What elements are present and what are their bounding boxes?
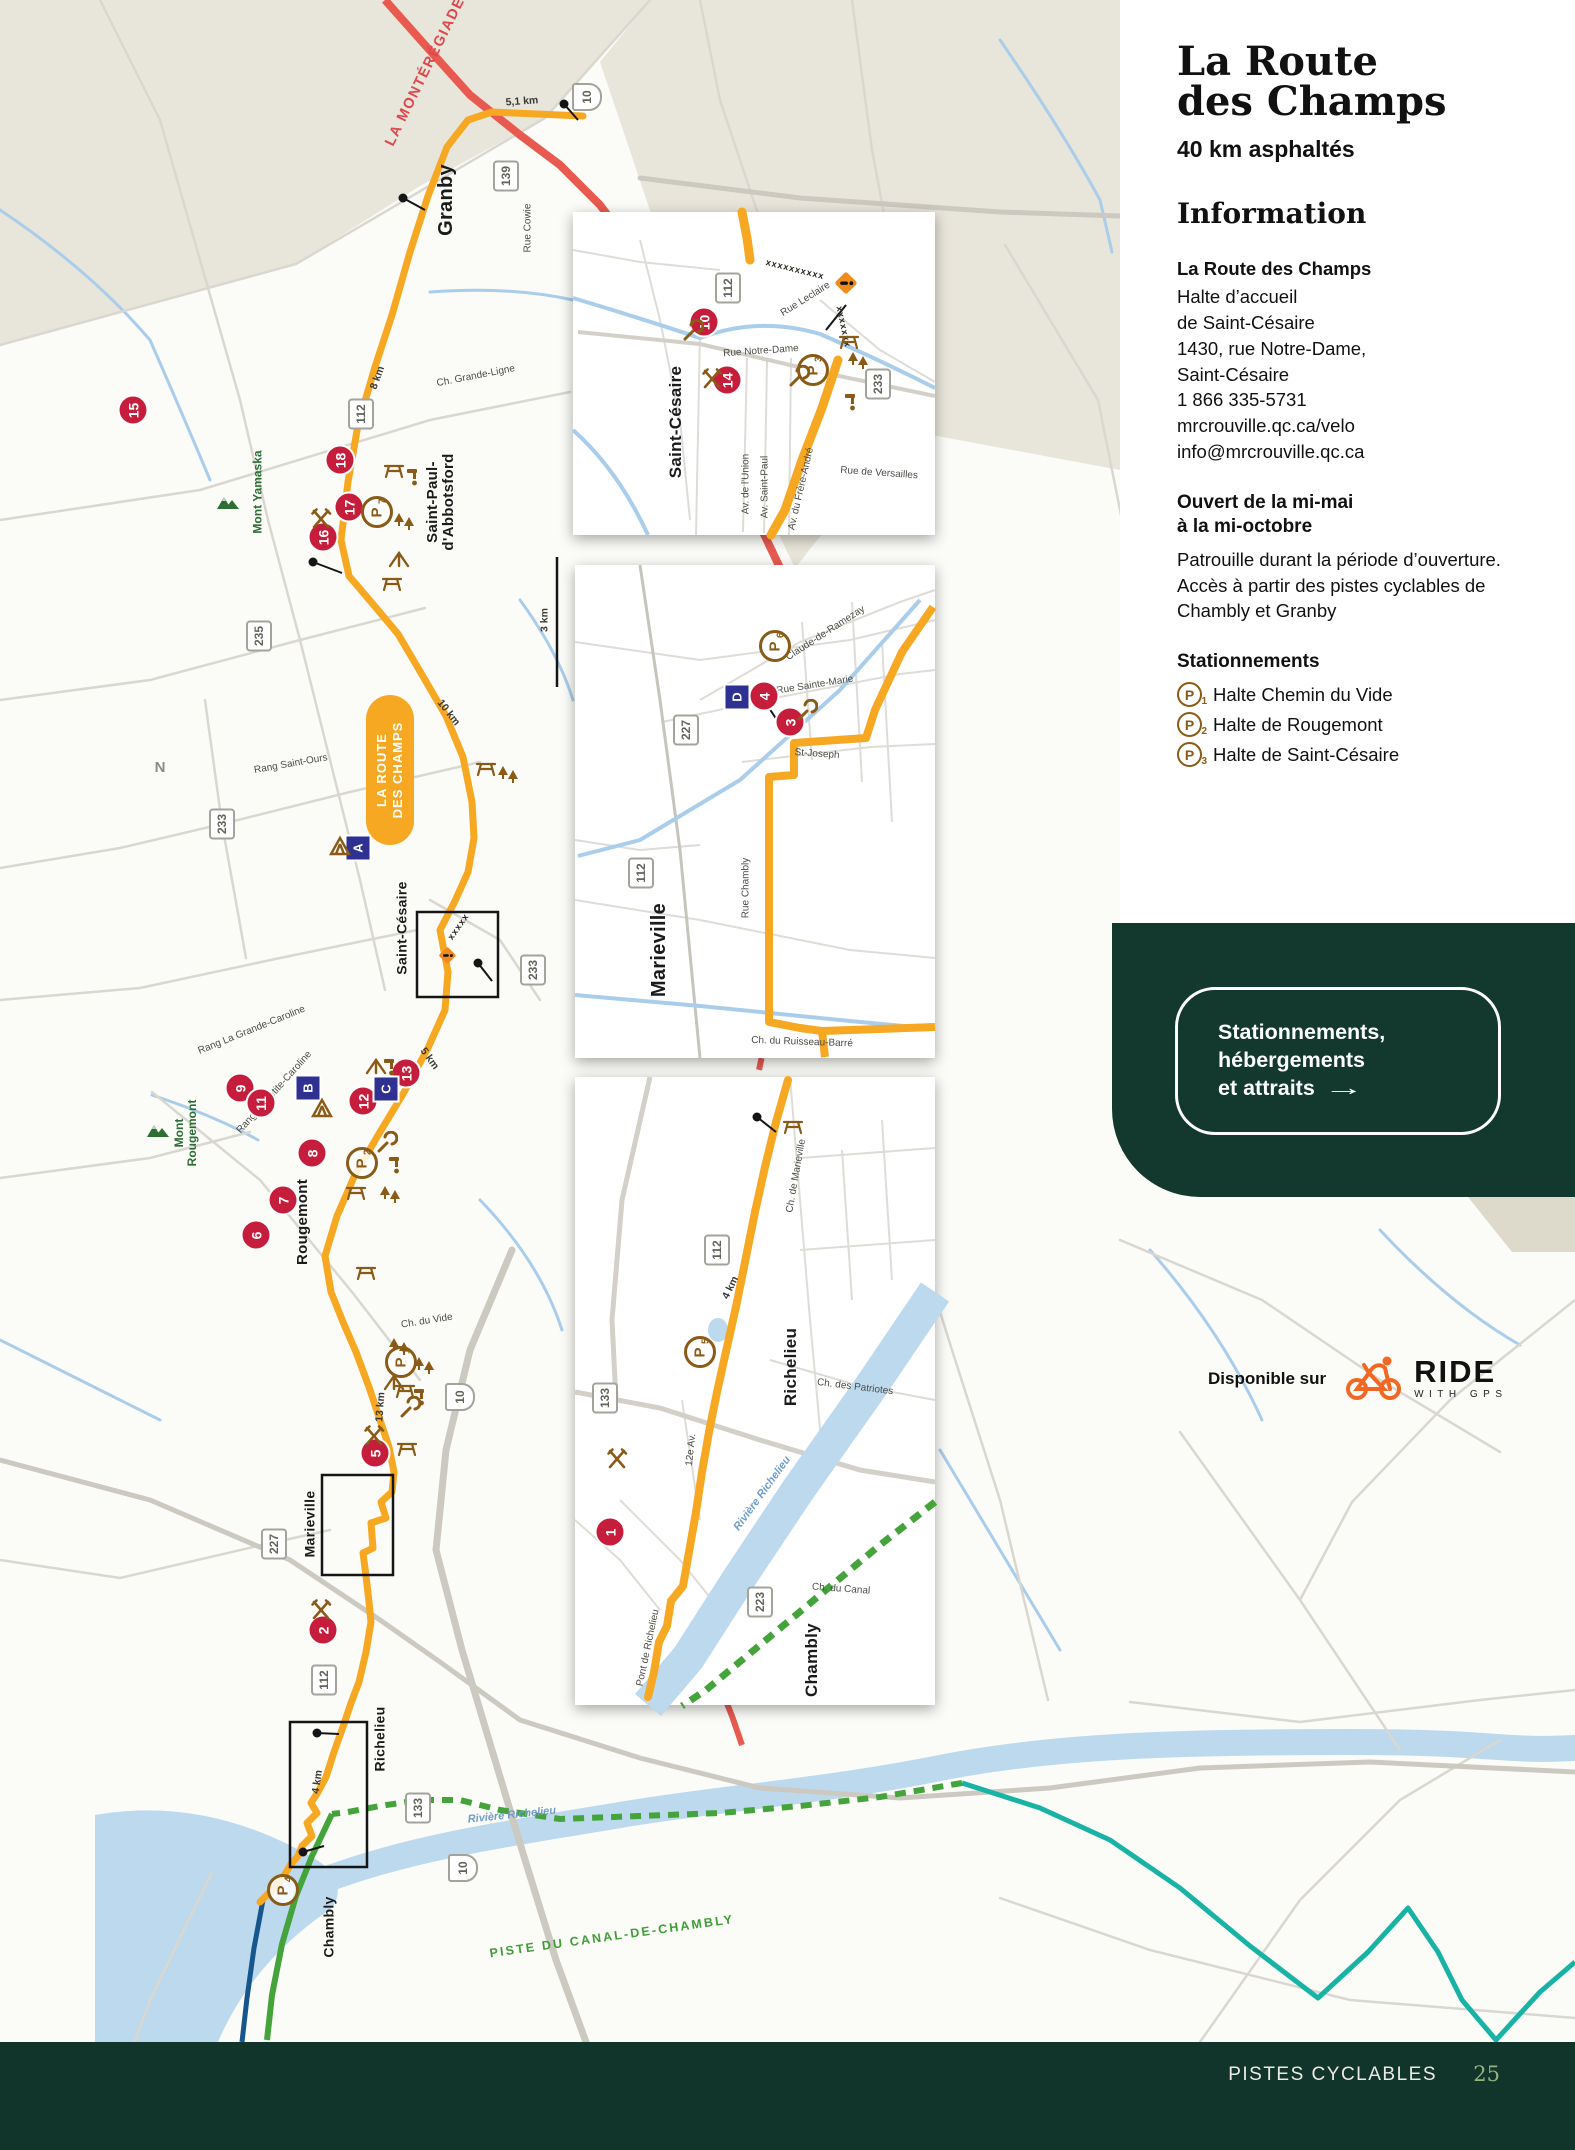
autoroute-shield-10: 10 (445, 1383, 475, 1411)
parking-item-label: Halte Chemin du Vide (1213, 684, 1393, 706)
map-label-water: Rivière Richelieu (467, 1805, 556, 1826)
wrench-icon (680, 319, 704, 343)
trees-icon (392, 511, 416, 535)
address-block: La Route des Champs Halte d’accueil de S… (1177, 256, 1535, 465)
poi-marker-18: 18 (327, 447, 354, 474)
route-label-monteregiade: LA MONTÉRÉGIADE (383, 0, 469, 149)
arrow-right-icon: → (1323, 1075, 1364, 1103)
water-icon (409, 1384, 433, 1408)
disponible-sur-label: Disponible sur (1208, 1369, 1326, 1389)
page: LA MONTÉRÉGIADEPISTE DU CANAL-DE-CHAMBLY… (0, 0, 1575, 2150)
trees-icon (412, 1355, 436, 1379)
water-icon (379, 1054, 403, 1078)
inset3-city-richelieu: Richelieu (782, 1328, 800, 1406)
map-label-dist: 3 km (539, 608, 550, 632)
route-shield-139: 139 (493, 161, 519, 192)
route-shield-112: 112 (715, 273, 741, 304)
map-label-street: Rue Notre-Dame (723, 344, 799, 360)
parking-icon: P3 (1177, 742, 1202, 767)
route-shield-227: 227 (261, 1529, 287, 1560)
route-length: 40 km asphaltés (1177, 136, 1535, 163)
map-label-dist: 8 km (369, 365, 388, 391)
route-shield-112: 112 (348, 399, 374, 430)
parking-marker-P5: P5 (684, 1336, 716, 1368)
map-label-street: Ch. du Canal (812, 1583, 871, 1598)
trees-icon (378, 1184, 402, 1208)
parking-item: P3Halte de Saint-Césaire (1177, 742, 1535, 767)
route-shield-227: 227 (673, 715, 699, 746)
construction-icon (831, 268, 861, 298)
poi-marker-17: 17 (336, 494, 363, 521)
picnic-icon (474, 756, 498, 780)
city-saint-paul-abbotsford: Saint-Paul- d'Abbotsford (425, 453, 457, 550)
poi-marker-4: 4 (751, 683, 778, 710)
water-icon (840, 389, 864, 413)
city-chambly: Chambly (321, 1896, 336, 1957)
map-label-street: Rue Sainte-Marie (776, 675, 855, 698)
parking-marker-P7: P7 (361, 496, 393, 528)
map-label-street: Ch. du Vide (400, 1313, 453, 1332)
shelter-icon (387, 547, 411, 571)
route-shield-223: 223 (747, 1587, 773, 1618)
picnic-icon (395, 1436, 419, 1460)
phone-number: 1 866 335-5731 (1177, 387, 1535, 413)
mountain-icon (146, 1121, 170, 1145)
food-icon (700, 367, 724, 391)
tent-icon (310, 1096, 334, 1120)
shelter-icon (382, 1370, 406, 1394)
green-cta-panel: Stationnements, hébergements et attraits… (1112, 923, 1575, 1197)
letter-marker-C: C (375, 1078, 398, 1101)
map-label-street: Claude-de-Ramezay (785, 604, 868, 663)
water-icon (402, 464, 426, 488)
trees-icon (846, 350, 870, 374)
route-name: La Route des Champs (1177, 256, 1535, 282)
parking-marker-P4: P4 (267, 1874, 299, 1906)
page-title: La Route des Champs (1177, 42, 1535, 122)
city-saint-cesaire: Saint-Césaire (394, 881, 409, 974)
map-label-dist: 10 km (434, 698, 461, 728)
parking-item-label: Halte de Saint-Césaire (1213, 744, 1399, 766)
map-label-street: Rue Cowie (524, 204, 535, 253)
map-label-street: Ch. de Marieville (785, 1138, 809, 1213)
city-rougemont: Rougemont (295, 1179, 311, 1265)
food-icon (362, 1424, 386, 1448)
route-shield-133: 133 (405, 1793, 431, 1824)
route-des-champs-badge: LA ROUTE DES CHAMPS (366, 695, 414, 845)
open-season-body: Patrouille durant la période d’ouverture… (1177, 547, 1535, 625)
map-label-street: Pont de Richelieu (636, 1609, 663, 1688)
map-label-street: Ch. du Ruisseau-Barré (751, 1036, 853, 1050)
badge-line2: DES CHAMPS (390, 722, 406, 819)
map-label-street: Av. du Frère-André (787, 447, 816, 531)
wrench-icon (794, 699, 818, 723)
autoroute-shield-10: 10 (448, 1854, 478, 1882)
open-season-heading: Ouvert de la mi-mai à la mi-octobre (1177, 491, 1535, 539)
wrench-icon (786, 365, 810, 389)
map-label-street: Av. Saint-Paul (761, 456, 772, 518)
city-richelieu: Richelieu (372, 1707, 387, 1772)
map-label-street: Rang Saint-Ours (253, 753, 328, 777)
poi-marker-7: 7 (270, 1187, 297, 1214)
map-label-street: Av. de l'Union (742, 454, 753, 514)
construction-section: xxxxx (446, 912, 471, 942)
map-label-street: Ch. des Patriotes (816, 1378, 893, 1398)
map-label-dist: 5,1 km (505, 95, 538, 109)
poi-marker-8: 8 (299, 1140, 326, 1167)
food-icon (309, 1598, 333, 1622)
city-granby: Granby (436, 164, 458, 236)
parking-marker-P6: P6 (759, 630, 791, 662)
mountain-icon (216, 493, 240, 517)
map-label-street: Rang La Grande-Caroline (197, 1005, 307, 1058)
cyclist-icon (1344, 1355, 1406, 1403)
water-icon (384, 1152, 408, 1176)
parking-list: P1Halte Chemin du VideP2Halte de Rougemo… (1177, 682, 1535, 767)
map-label-dist: 4 km (721, 1275, 742, 1301)
email-link[interactable]: info@mrcrouville.qc.ca (1177, 439, 1535, 465)
trees-icon (387, 1336, 411, 1360)
inset1-city-saint-cesaire: Saint-Césaire (667, 366, 685, 479)
address-lines: Halte d’accueil de Saint-Césaire 1430, r… (1177, 284, 1535, 388)
map-label-street: Rue Chambly (742, 858, 753, 919)
inset2-city-marieville: Marieville (649, 903, 671, 997)
picnic-icon (344, 1180, 368, 1204)
tent-icon (328, 834, 352, 858)
map-label-dist: 5 km (417, 1046, 440, 1072)
poi-marker-6: 6 (243, 1222, 270, 1249)
poi-marker-1: 1 (597, 1519, 624, 1546)
inset3-city-chambly: Chambly (803, 1623, 821, 1697)
route-shield-112: 112 (628, 858, 654, 889)
parking-item-label: Halte de Rougemont (1213, 714, 1383, 736)
compass-north: N (155, 760, 166, 776)
food-icon (605, 1447, 629, 1471)
info-panel: La Route des Champs 40 km asphaltés Info… (1120, 0, 1575, 923)
ride-brand: RIDE (1414, 1358, 1507, 1386)
map-label-street: Rue de Versailles (840, 466, 918, 482)
parking-heading: Stationnements (1177, 650, 1535, 674)
trees-icon (496, 764, 520, 788)
construction-icon (436, 944, 459, 967)
route-shield-233: 233 (520, 955, 546, 986)
city-marieville: Marieville (302, 1491, 317, 1558)
map-label-street: St-Joseph (794, 748, 840, 762)
map-label-dist: 13 km (374, 1392, 387, 1422)
website-link[interactable]: mrcrouville.qc.ca/velo (1177, 413, 1535, 439)
withgps-brand: WITH GPS (1414, 1389, 1507, 1400)
footer-section-label: PISTES CYCLABLES (1228, 2064, 1437, 2086)
route-shield-235: 235 (246, 621, 272, 652)
route-label-canal-chambly: PISTE DU CANAL-DE-CHAMBLY (489, 1913, 735, 1961)
parking-item: P2Halte de Rougemont (1177, 712, 1535, 737)
parking-item: P1Halte Chemin du Vide (1177, 682, 1535, 707)
poi-marker-15: 15 (120, 397, 147, 424)
poi-marker-12: 12 (350, 1088, 377, 1115)
picnic-icon (354, 1260, 378, 1284)
information-heading: Information (1177, 197, 1535, 230)
route-shield-112: 112 (311, 1665, 337, 1696)
map-label-street: 12e Av. (685, 1433, 699, 1466)
badge-line1: LA ROUTE (374, 733, 390, 807)
mont-yamaska-label: Mont Yamaska (252, 450, 265, 533)
food-icon (309, 507, 333, 531)
footer-page-number: 25 (1473, 2062, 1500, 2086)
mont-rougemont-label: Mont Rougemont (173, 1100, 199, 1167)
map-label-street: Ch. Grande-Ligne (436, 364, 516, 390)
footer-bar: PISTES CYCLABLES 25 (0, 2042, 1575, 2150)
route-shield-112: 112 (704, 1235, 730, 1266)
letter-marker-D: D (726, 686, 749, 709)
poi-marker-11: 11 (248, 1090, 275, 1117)
stationnements-cta-button[interactable]: Stationnements, hébergements et attraits… (1175, 987, 1501, 1135)
parking-icon: P2 (1177, 712, 1202, 737)
autoroute-shield-10: 10 (572, 83, 602, 111)
picnic-icon (781, 1114, 805, 1138)
picnic-icon (380, 571, 404, 595)
map-label-water: Rivière Richelieu (732, 1455, 794, 1534)
route-shield-133: 133 (592, 1383, 618, 1414)
parking-icon: P1 (1177, 682, 1202, 707)
ridewithgps-block[interactable]: Disponible sur RIDE WITH GPS (1208, 1355, 1508, 1403)
map-label-street: Rue Leclaire (779, 281, 832, 320)
construction-section: xxxxxxxxxx (765, 258, 826, 282)
route-shield-233: 233 (209, 809, 235, 840)
map-label-dist: 4 km (311, 1769, 326, 1794)
